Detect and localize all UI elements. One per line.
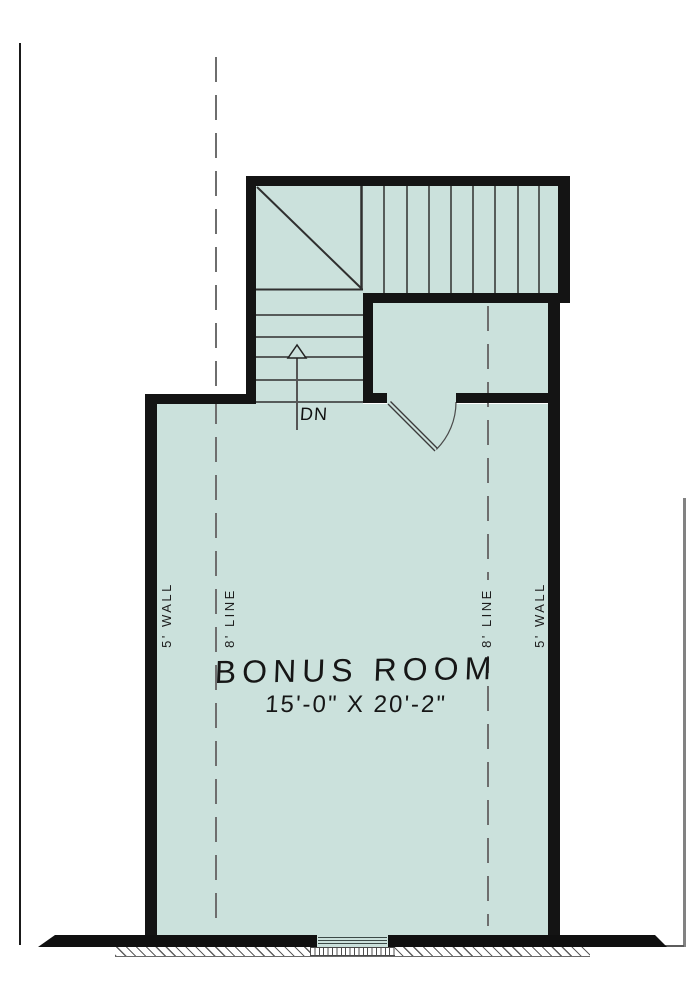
stair-right-wall [558,176,570,303]
door-leaf-inner [391,402,438,449]
window-glazing-line [318,937,387,938]
landing-diagonal-line [257,187,362,289]
upper-stair-treads [384,186,539,293]
room-dimensions-label: 15'-0" X 20'-2" [145,691,566,719]
window-sill-hatch [310,947,395,956]
hall-bottom-wall [456,393,560,403]
bonus-room-top-wall [145,394,256,404]
door-jamb-left-wall [363,393,387,403]
hall-left-wall [363,293,373,403]
stair-landing-linework [256,186,363,290]
stair-left-wall [246,176,256,400]
stair-hall-divider-wall [363,293,570,303]
room-name-label: BONUS ROOM [145,649,567,692]
left-wall-height-label: 5' WALL [160,580,174,650]
door-swing-arc [436,402,456,449]
door-swing [388,402,456,452]
window-plan-symbol [317,935,388,947]
window-glazing-line [318,940,387,941]
floor-plan: 5' WALL 8' LINE 8' LINE 5' WALL BONUS RO… [0,0,686,990]
left-edge-line [19,43,21,945]
right-ceiling-line-label: 8' LINE [479,580,495,656]
door-leaf-outer [388,404,435,451]
stair-down-label: DN [299,404,328,425]
window-glazing-line [318,943,387,944]
up-arrow-icon [288,345,306,358]
left-ceiling-line-label: 8' LINE [222,580,238,656]
stair-top-wall [246,176,570,186]
bonus-room-right-wall [548,303,560,935]
lower-stair-treads [256,315,363,402]
right-wall-height-label: 5' WALL [533,580,547,650]
